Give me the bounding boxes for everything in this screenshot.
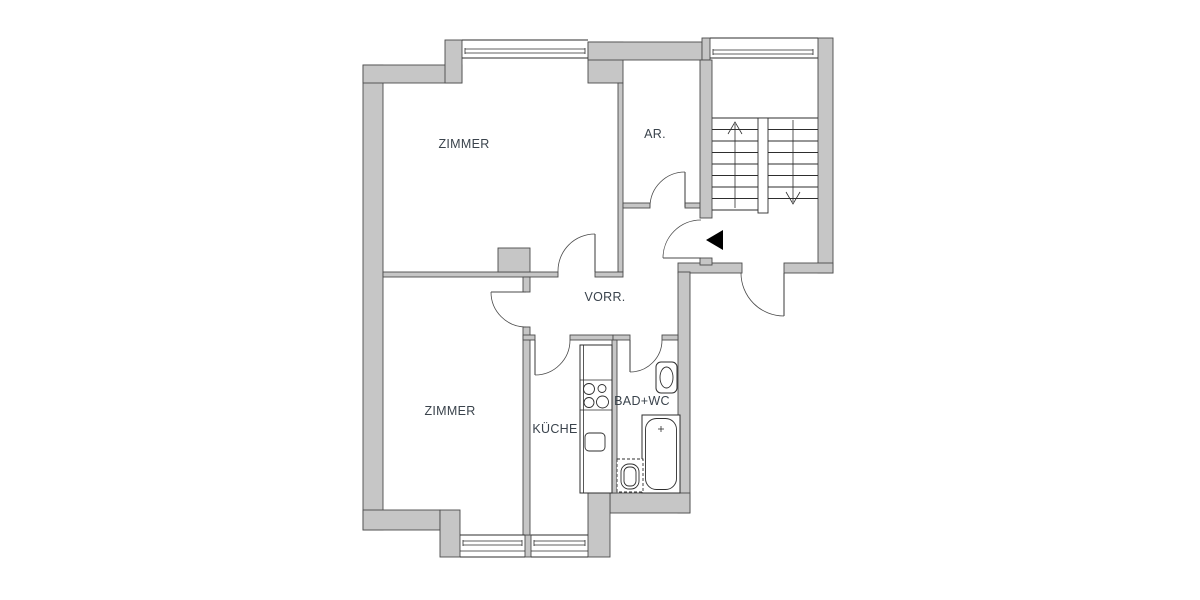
stairs-up-arrow-icon: [728, 122, 742, 208]
wall: [363, 510, 440, 530]
wall: [588, 493, 610, 557]
door-apartment-entrance: [663, 220, 701, 258]
wall: [525, 535, 531, 557]
stair-divider: [758, 118, 768, 213]
wall: [618, 83, 623, 272]
door-ar: [650, 172, 685, 207]
room-label-zimmer-bottom: ZIMMER: [424, 404, 475, 418]
wall: [445, 40, 462, 83]
room-label-ar: AR.: [644, 127, 666, 141]
wall: [588, 42, 702, 60]
window-kueche: [531, 535, 588, 557]
room-label-vorr: VORR.: [584, 290, 625, 304]
toilet-icon: [617, 459, 643, 492]
wall: [702, 38, 710, 60]
window-stairwell: [710, 38, 818, 58]
wall: [685, 203, 700, 208]
wall: [700, 258, 712, 265]
wall: [363, 65, 383, 530]
door-zimmer-top: [558, 234, 595, 272]
wall: [440, 510, 460, 557]
wall: [570, 335, 613, 340]
wall: [623, 203, 650, 208]
floor-plan-canvas: ZIMMER AR. VORR. ZIMMER KÜCHE BAD+WC: [0, 0, 1200, 600]
stairs-down-arrow-icon: [786, 120, 800, 204]
window-zimmer-bottom: [460, 535, 525, 557]
wall: [700, 60, 712, 218]
window-zimmer-top: [462, 40, 588, 58]
wall: [818, 38, 833, 273]
room-label-bad-wc: BAD+WC: [614, 394, 670, 408]
floor-plan-drawing: ZIMMER AR. VORR. ZIMMER KÜCHE BAD+WC: [0, 0, 1200, 600]
wall: [595, 272, 623, 277]
bathtub-icon: [642, 415, 680, 493]
room-label-zimmer-top: ZIMMER: [438, 137, 489, 151]
entrance-arrow-icon: [706, 230, 723, 250]
wall: [523, 335, 535, 340]
washbasin-icon: [656, 362, 677, 393]
door-zimmer-bottom: [491, 292, 526, 327]
staircase: [712, 118, 818, 213]
wall: [662, 335, 678, 340]
wall: [610, 493, 690, 513]
wall: [613, 335, 630, 340]
wall: [523, 327, 530, 535]
door-stair-landing: [741, 273, 784, 316]
wall: [383, 272, 558, 277]
wall: [784, 263, 833, 273]
wall: [612, 340, 617, 493]
wall: [523, 277, 530, 292]
kitchen-counter: [580, 345, 612, 493]
room-label-kueche: KÜCHE: [532, 422, 577, 436]
door-kueche: [535, 340, 570, 375]
wall: [498, 248, 530, 272]
